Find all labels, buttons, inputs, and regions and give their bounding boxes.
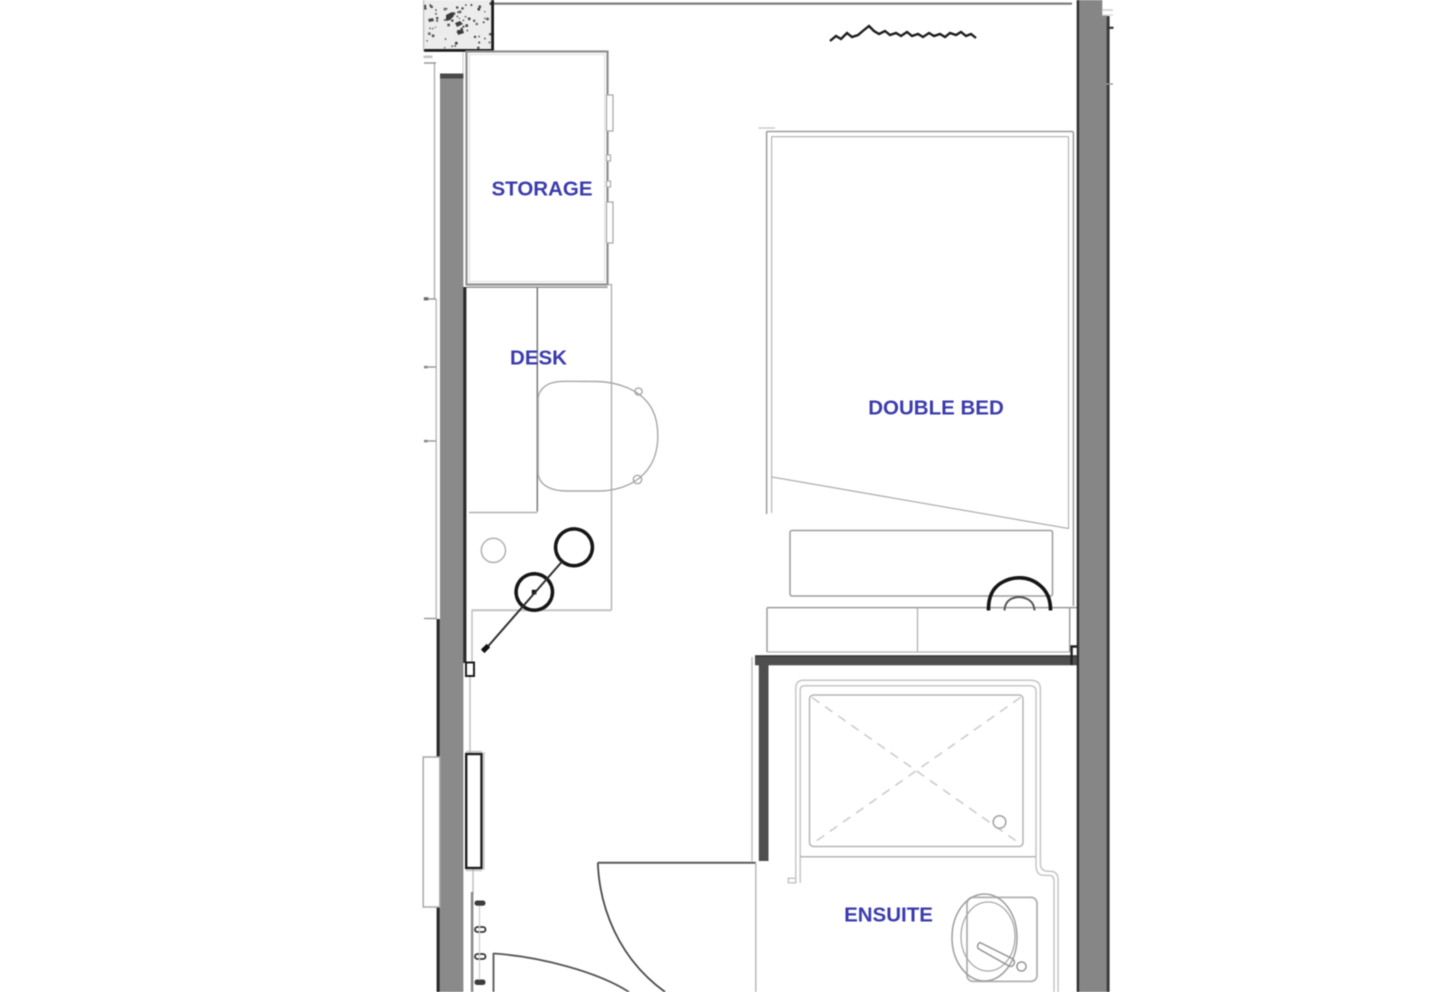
svg-text:DOUBLE BED: DOUBLE BED xyxy=(868,397,1004,420)
svg-text:STORAGE: STORAGE xyxy=(492,178,593,201)
svg-text:ENSUITE: ENSUITE xyxy=(844,904,933,927)
svg-text:DESK: DESK xyxy=(510,347,567,370)
